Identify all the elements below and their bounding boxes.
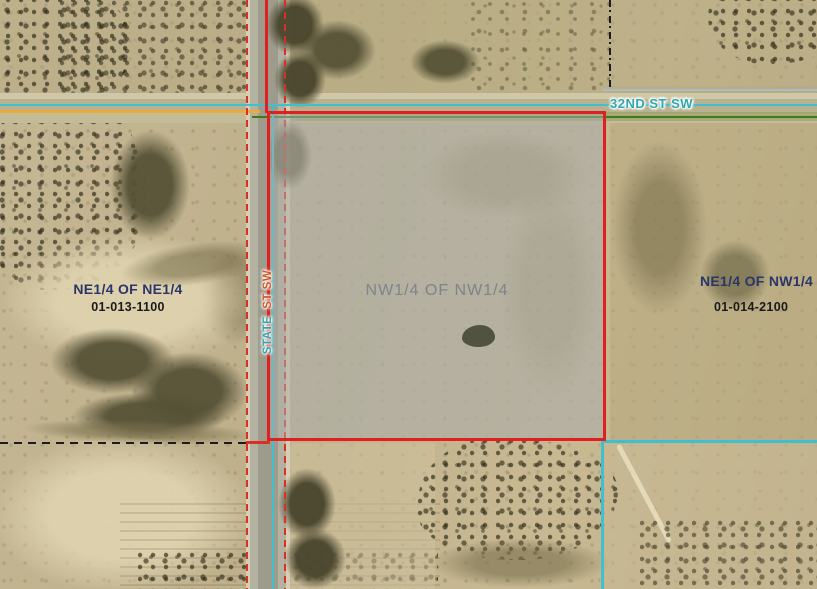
parcel-line-cyan-32nd xyxy=(0,104,817,106)
terrain-woods-belowparcel-fade xyxy=(430,538,610,588)
street-label-state-st-sw: STATEST SW xyxy=(262,270,274,354)
survey-line-bluegray xyxy=(602,89,817,91)
pond xyxy=(462,325,495,347)
map-viewport: 32ND ST SW STATEST SW NW1/4 OF NW1/4 NE1… xyxy=(0,0,817,589)
parcel-label-east-id: 01-014-2100 xyxy=(714,300,788,314)
terrain-brush-right-clump xyxy=(612,140,707,315)
parcel-label-east-quarter: NE1/4 OF NW1/4 xyxy=(700,273,813,289)
street-label-state-word: STATE xyxy=(262,316,274,355)
survey-line-black-dashdot xyxy=(609,0,611,90)
terrain-scatter-bottomright xyxy=(640,520,817,589)
terrain-trees-road-top-1 xyxy=(266,0,324,56)
terrain-woods-left-2 xyxy=(110,130,190,240)
selected-parcel-boundary[interactable] xyxy=(267,111,606,441)
selected-parcel-label: NW1/4 OF NW1/4 xyxy=(337,282,537,300)
row-line-red-dash-west xyxy=(246,0,248,589)
boundary-red-crossing xyxy=(246,441,270,444)
street-label-32nd-st-sw: 32ND ST SW xyxy=(610,96,693,111)
section-line-orange xyxy=(0,110,260,113)
boundary-red-solid-north xyxy=(265,0,268,113)
parcel-line-cyan-east xyxy=(601,440,604,589)
parcel-label-west-quarter: NE1/4 OF NE1/4 xyxy=(52,281,204,297)
parcel-label-west-id: 01-013-1100 xyxy=(52,300,204,314)
terrain-scatter-topleft xyxy=(60,0,255,98)
terrain-trees-road-top-2 xyxy=(274,50,326,108)
terrain-trees-road-bottom-2 xyxy=(284,528,346,589)
survey-line-black-dash xyxy=(0,442,248,444)
terrain-scatter-topmid xyxy=(470,0,610,90)
parcel-line-cyan-south xyxy=(601,440,817,443)
street-label-stsw-word: ST SW xyxy=(262,270,274,309)
